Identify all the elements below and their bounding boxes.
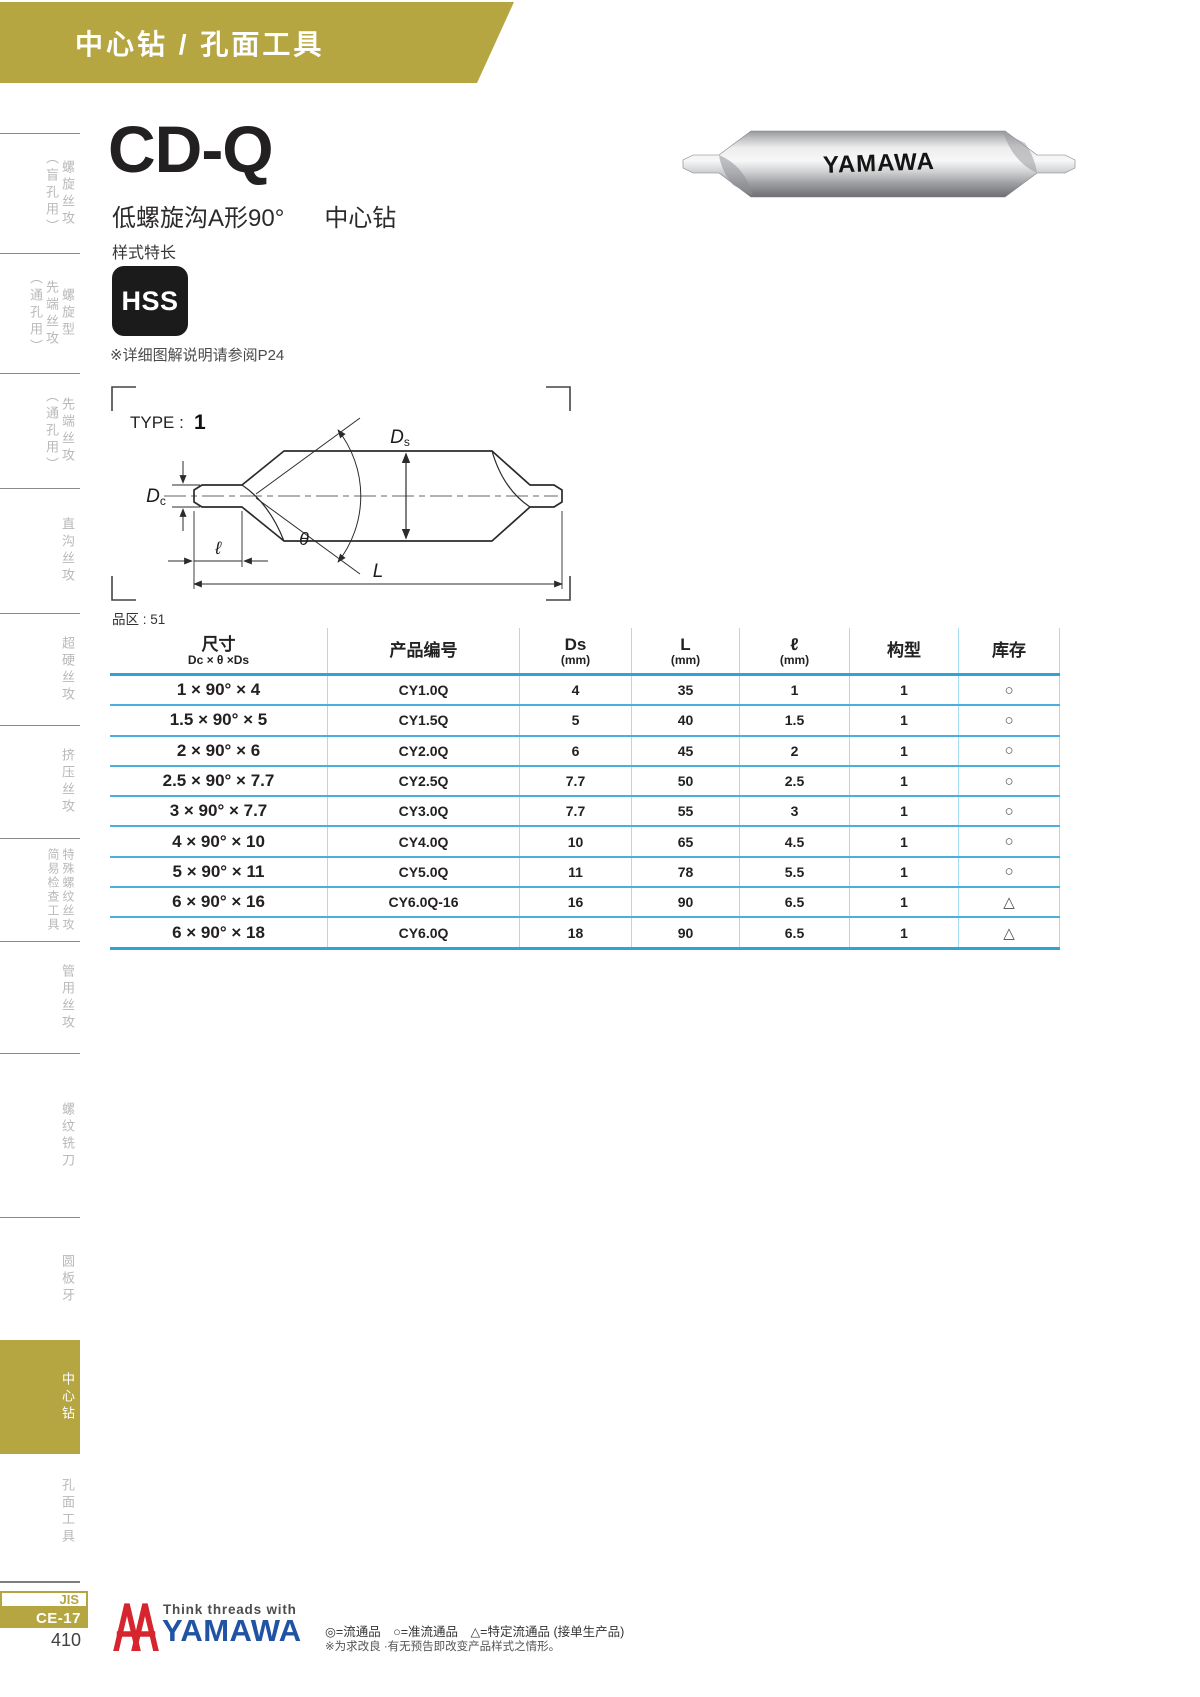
table-header-cell: 产品编号: [328, 628, 520, 673]
cell-l: 90: [632, 918, 740, 946]
jis-badge: JIS: [0, 1591, 88, 1608]
sidebar-item-8: 管用丝攻: [0, 941, 80, 1053]
sidebar-nav: 螺旋丝攻（盲孔用）螺旋型先端丝攻（通孔用）先端丝攻（通孔用）直沟丝攻超硬丝攻挤压…: [0, 0, 80, 1697]
sidebar-item-11: 中心钻: [0, 1340, 80, 1454]
type-diagram: TYPE : 1 θ Ds Dc ℓ L: [106, 381, 576, 606]
sidebar-item-label: 简易检查工具: [45, 848, 60, 932]
sidebar-item-label: 直沟丝攻: [59, 517, 75, 585]
cell-type: 1: [850, 767, 959, 795]
sidebar-item-label: 特殊螺纹丝攻: [60, 848, 75, 932]
diagram-type-value: 1: [194, 411, 206, 434]
table-row: 2.5 × 90° × 7.7CY2.5Q7.7502.51○: [110, 767, 1060, 797]
cell-ds: 18: [520, 918, 632, 946]
cell-stock: ○: [959, 676, 1060, 704]
jis-badge-label: JIS: [59, 1592, 79, 1607]
cell-stock: ○: [959, 706, 1060, 734]
cell-stock: ○: [959, 767, 1060, 795]
table-header-cell: 尺寸 Dc × θ ×Ds: [110, 628, 328, 673]
cell-type: 1: [850, 888, 959, 916]
sidebar-item-label: 先端丝攻: [43, 271, 59, 356]
product-model-title: CD-Q: [108, 116, 273, 182]
page-number: 410: [0, 1630, 81, 1651]
cell-type: 1: [850, 827, 959, 855]
cell-ell: 6.5: [740, 888, 850, 916]
cell-size: 6 × 90° × 18: [110, 918, 328, 946]
sidebar-item-label: 螺纹铣刀: [59, 1102, 75, 1170]
cell-ell: 1: [740, 676, 850, 704]
cell-code: CY2.5Q: [328, 767, 520, 795]
cell-l: 55: [632, 797, 740, 825]
table-row: 6 × 90° × 18CY6.0Q18906.51△: [110, 918, 1060, 949]
product-series-tail: 中心钻: [324, 205, 396, 232]
sidebar-item-label: 螺旋型: [59, 271, 75, 356]
product-feature-label: 样式特长: [112, 239, 176, 263]
table-row: 5 × 90° × 11CY5.0Q11785.51○: [110, 858, 1060, 888]
table-row: 6 × 90° × 16CY6.0Q-1616906.51△: [110, 888, 1060, 918]
sidebar-item-4: 直沟丝攻: [0, 488, 80, 613]
cell-ds: 16: [520, 888, 632, 916]
cell-l: 40: [632, 706, 740, 734]
cell-code: CY3.0Q: [328, 797, 520, 825]
ds-label: Ds: [390, 427, 410, 449]
cell-code: CY1.0Q: [328, 676, 520, 704]
catalog-code-badge: CE-17: [0, 1608, 88, 1628]
table-row: 1 × 90° × 4CY1.0Q43511○: [110, 676, 1060, 706]
cell-type: 1: [850, 858, 959, 886]
spec-table-header: 尺寸 Dc × θ ×Ds 产品编号 Ds (mm) L (mm) ℓ (mm)…: [110, 628, 1060, 676]
material-badge: HSS: [112, 266, 188, 336]
cell-ds: 6: [520, 737, 632, 765]
table-header-cell: L (mm): [632, 628, 740, 673]
cell-l: 78: [632, 858, 740, 886]
sidebar-item-10: 圆板牙: [0, 1217, 80, 1340]
cell-code: CY6.0Q: [328, 918, 520, 946]
cell-type: 1: [850, 918, 959, 946]
cell-stock: ○: [959, 737, 1060, 765]
cell-size: 5 × 90° × 11: [110, 858, 328, 886]
cell-stock: ○: [959, 827, 1060, 855]
sidebar-item-label: 管用丝攻: [59, 964, 75, 1032]
sidebar-item-9: 螺纹铣刀: [0, 1053, 80, 1217]
sidebar-item-label: 挤压丝攻: [59, 748, 75, 816]
cell-l: 45: [632, 737, 740, 765]
cell-size: 6 × 90° × 16: [110, 888, 328, 916]
cell-l: 50: [632, 767, 740, 795]
cell-stock: △: [959, 918, 1060, 946]
sidebar-item-1: 螺旋丝攻（盲孔用）: [0, 133, 80, 253]
cell-code: CY1.5Q: [328, 706, 520, 734]
table-row: 1.5 × 90° × 5CY1.5Q5401.51○: [110, 706, 1060, 736]
cell-ds: 7.7: [520, 767, 632, 795]
cell-ell: 4.5: [740, 827, 850, 855]
cell-type: 1: [850, 737, 959, 765]
table-header-cell: ℓ (mm): [740, 628, 850, 673]
cell-ds: 5: [520, 706, 632, 734]
photo-brand-text: YAMAWA: [823, 148, 936, 179]
cell-ell: 6.5: [740, 918, 850, 946]
cell-ell: 2.5: [740, 767, 850, 795]
pilot-length-label: ℓ: [214, 538, 222, 558]
cell-size: 2 × 90° × 6: [110, 737, 328, 765]
sidebar-item-label: （通孔用）: [43, 389, 59, 474]
product-subtitle: 低螺旋沟A形90°中心钻: [112, 198, 396, 233]
table-header-cell: Ds (mm): [520, 628, 632, 673]
sidebar-item-3: 先端丝攻（通孔用）: [0, 373, 80, 488]
catalog-code-label: CE-17: [36, 1610, 81, 1627]
cell-ds: 11: [520, 858, 632, 886]
sidebar-item-7: 特殊螺纹丝攻简易检查工具: [0, 838, 80, 941]
cell-l: 90: [632, 888, 740, 916]
spec-table: 尺寸 Dc × θ ×Ds 产品编号 Ds (mm) L (mm) ℓ (mm)…: [110, 628, 1060, 950]
sidebar-item-label: 螺旋丝攻: [59, 151, 75, 236]
angle-label: θ: [299, 529, 309, 549]
overall-length-label: L: [373, 561, 384, 582]
product-block-label: 品区 : 51: [112, 608, 165, 628]
cell-size: 1.5 × 90° × 5: [110, 706, 328, 734]
cell-ell: 1.5: [740, 706, 850, 734]
cell-code: CY2.0Q: [328, 737, 520, 765]
cell-code: CY6.0Q-16: [328, 888, 520, 916]
cell-code: CY4.0Q: [328, 827, 520, 855]
table-row: 4 × 90° × 10CY4.0Q10654.51○: [110, 827, 1060, 857]
cell-code: CY5.0Q: [328, 858, 520, 886]
cell-type: 1: [850, 797, 959, 825]
cell-ell: 2: [740, 737, 850, 765]
sidebar-item-label: 孔面工具: [59, 1478, 75, 1546]
cell-stock: ○: [959, 858, 1060, 886]
cell-ell: 5.5: [740, 858, 850, 886]
sidebar-item-label: （盲孔用）: [43, 151, 59, 236]
page-title: 中心钻 / 孔面工具: [75, 23, 324, 63]
sidebar-item-label: 超硬丝攻: [59, 636, 75, 704]
sidebar-item-2: 螺旋型先端丝攻（通孔用）: [0, 253, 80, 373]
reference-note: ※详细图解说明请参阅P24: [110, 344, 284, 365]
sidebar-item-label: 圆板牙: [59, 1254, 75, 1305]
sidebar-item-label: （通孔用）: [27, 271, 43, 356]
spec-table-body: 1 × 90° × 4CY1.0Q43511○1.5 × 90° × 5CY1.…: [110, 676, 1060, 950]
table-row: 3 × 90° × 7.7CY3.0Q7.75531○: [110, 797, 1060, 827]
sidebar-item-label: 中心钻: [59, 1372, 75, 1423]
product-photo: YAMAWA: [673, 124, 1088, 204]
cell-size: 4 × 90° × 10: [110, 827, 328, 855]
yamawa-logo-icon: [113, 1601, 159, 1651]
cell-type: 1: [850, 706, 959, 734]
footer-disclaimer: ※为求改良 ·有无预告即改变产品样式之情形。: [325, 1638, 560, 1654]
cell-ds: 10: [520, 827, 632, 855]
material-badge-label: HSS: [121, 286, 178, 317]
cell-l: 35: [632, 676, 740, 704]
sidebar-item-12: 孔面工具: [0, 1454, 80, 1569]
sidebar-bottom-divider: [0, 1581, 80, 1583]
cell-size: 2.5 × 90° × 7.7: [110, 767, 328, 795]
diagram-type-label: TYPE :: [130, 413, 184, 432]
table-header-cell: 库存: [959, 628, 1060, 673]
cell-size: 3 × 90° × 7.7: [110, 797, 328, 825]
sidebar-item-label: 先端丝攻: [59, 389, 75, 474]
cell-ell: 3: [740, 797, 850, 825]
cell-ds: 4: [520, 676, 632, 704]
cell-type: 1: [850, 676, 959, 704]
cell-stock: ○: [959, 797, 1060, 825]
sidebar-item-5: 超硬丝攻: [0, 613, 80, 725]
table-row: 2 × 90° × 6CY2.0Q64521○: [110, 737, 1060, 767]
cell-stock: △: [959, 888, 1060, 916]
cell-l: 65: [632, 827, 740, 855]
table-header-cell: 构型: [850, 628, 959, 673]
sidebar-item-6: 挤压丝攻: [0, 725, 80, 838]
logo-brand-text: YAMAWA: [162, 1613, 302, 1649]
cell-size: 1 × 90° × 4: [110, 676, 328, 704]
cell-ds: 7.7: [520, 797, 632, 825]
product-series-name: 低螺旋沟A形90°: [112, 205, 284, 232]
dc-label: Dc: [146, 486, 166, 508]
